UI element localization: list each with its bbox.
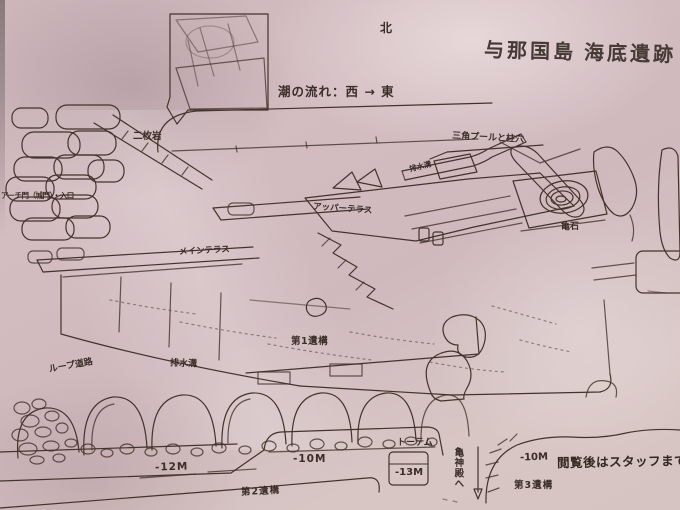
label-futamaiwa: 二枚岩: [133, 131, 162, 142]
depth-10m-west: -10M: [293, 453, 326, 466]
site-map-drawing: [0, 0, 680, 510]
label-remains-3: 第3遺構: [514, 480, 553, 491]
label-remains-1: 第1遺構: [291, 336, 328, 347]
photographed-site-map: 北 与那国島 海底遺跡 潮の流れ：西 → 東 二枚岩 アーチ門（城門）・入口 三…: [0, 0, 680, 510]
turtle-rock-platform: [513, 171, 607, 231]
depth-10m-east: -10M: [520, 452, 548, 465]
label-drain: 排水溝: [170, 359, 197, 371]
plateau-top-edge: [158, 103, 492, 152]
map-title: 与那国島 海底遺跡: [484, 38, 677, 67]
label-remains-2: 第2遺構: [241, 485, 281, 498]
label-turtle-shrine: 亀神殿へ: [452, 447, 463, 489]
label-turtle-rock: 亀石: [561, 222, 579, 233]
west-boulder-stacks: [6, 105, 124, 240]
rock-outcrops-east: [511, 146, 680, 260]
tide-note: 潮の流れ：西 → 東: [278, 84, 395, 99]
depth-13m: -13M: [395, 467, 423, 479]
north-label: 北: [380, 21, 392, 35]
east-platform: [592, 251, 680, 293]
staff-return-note: 閲覧後はスタッフまで返: [557, 453, 680, 470]
underwater-photo-inset: [167, 14, 268, 124]
depth-12m: -12M: [155, 460, 189, 474]
label-arch-gate: アーチ門（城門）・入口: [1, 191, 74, 200]
label-totem: トーテム: [397, 438, 433, 449]
